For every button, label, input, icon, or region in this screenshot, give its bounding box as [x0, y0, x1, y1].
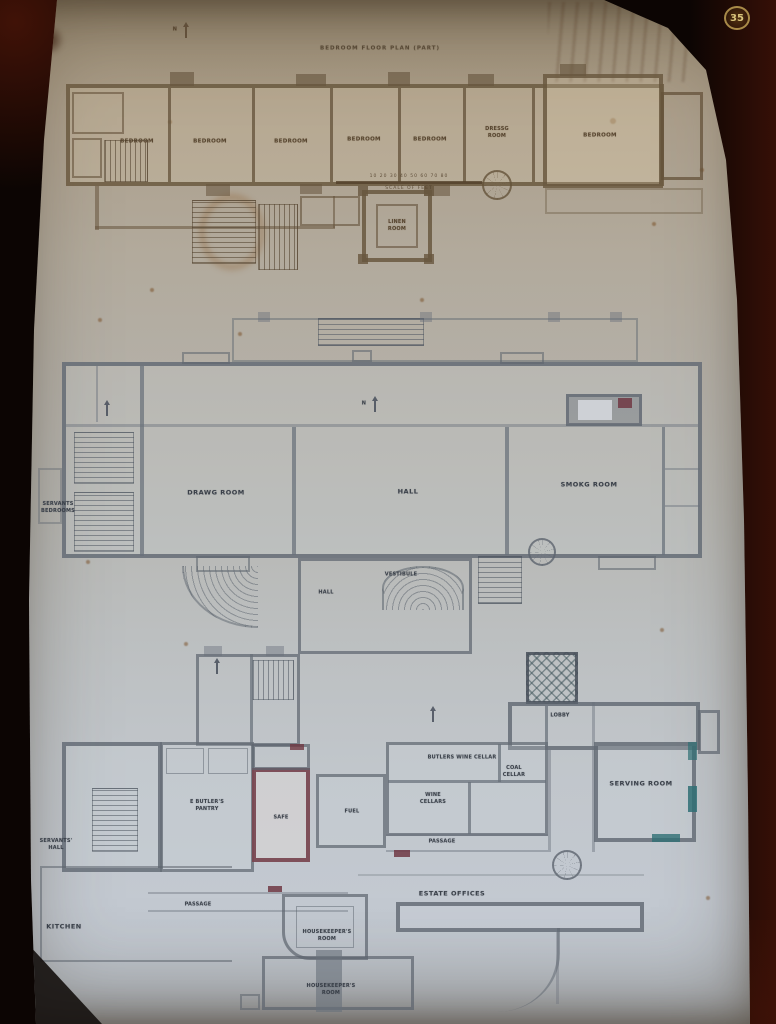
spiral-stair [528, 538, 556, 566]
wall [168, 88, 171, 182]
framed-floor-plan-photo: BEDROOM FLOOR PLAN (PART) [0, 0, 776, 1024]
stair-hatch [74, 432, 134, 484]
wall [252, 88, 255, 182]
wall [662, 427, 665, 555]
wall [250, 654, 253, 746]
bay-window [266, 646, 284, 656]
wall [548, 750, 551, 852]
room-label-bedroom: BEDROOM [193, 139, 227, 146]
room-label-housekeepers-room: HOUSEKEEPER'S ROOM [303, 929, 352, 943]
window-mark [688, 786, 697, 812]
room-label-coal-cellar: COAL CELLAR [503, 765, 525, 779]
room-label-butlers-pantry: E BUTLER'S PANTRY [190, 799, 224, 813]
north-label: N [362, 401, 366, 408]
porch-outline [38, 468, 62, 524]
curved-steps [182, 566, 258, 628]
wall [498, 744, 501, 782]
wing-stub [698, 710, 720, 754]
foxing-dot [86, 560, 90, 564]
north-arrow-icon [372, 396, 378, 412]
page-number: 35 [730, 13, 744, 24]
room-label-butlers-wine-cellar: BUTLERS WINE CELLAR [428, 755, 497, 762]
room-label-estate-offices: ESTATE OFFICES [419, 891, 485, 898]
room-label-dressing-room: DRESSG ROOM [485, 126, 509, 140]
wall [532, 88, 535, 182]
serving-room-block [594, 742, 696, 842]
scale-bar-line [336, 181, 482, 184]
foxing-dot [420, 298, 424, 302]
foxing-dot [98, 318, 102, 322]
wall [96, 366, 98, 422]
room-label-bedroom: BEDROOM [583, 133, 617, 140]
wall [95, 186, 99, 230]
north-label: N [173, 27, 177, 34]
room-label-hall-lower: HALL [318, 590, 333, 597]
scale-caption: SCALE OF FEET [334, 186, 484, 191]
principal-floor-main-block [62, 362, 702, 558]
chimney-mark [618, 398, 632, 408]
bay-window [182, 352, 230, 364]
room-label-drawing-room: DRAWG ROOM [187, 490, 244, 497]
scale-numbers: 10 20 30 40 50 60 70 80 [334, 174, 484, 179]
north-arrow-shaft [106, 405, 108, 416]
terrace-post [548, 312, 560, 322]
room-label-smoking-room: SMOKG ROOM [561, 482, 618, 489]
room-label-bedroom: BEDROOM [347, 137, 381, 144]
room-outline [72, 138, 102, 178]
wall [140, 366, 144, 556]
room-outline [72, 92, 124, 134]
wall [463, 88, 466, 182]
room-label-bedroom: BEDROOM [120, 139, 154, 146]
room-label-vestibule: VESTIBULE [385, 572, 417, 579]
bay-window [204, 646, 222, 656]
room-label-servants-bedrooms: SERVANTS BEDROOMS [41, 501, 75, 515]
room-label-housekeepers-room-2: HOUSEKEEPER'S ROOM [307, 983, 356, 997]
paper-sheet: BEDROOM FLOOR PLAN (PART) [0, 0, 776, 1024]
spiral-stair [482, 170, 512, 200]
room-label-bedroom: BEDROOM [274, 139, 308, 146]
chimney-mark [268, 886, 282, 892]
room-outline [166, 748, 204, 774]
kitchen-outline [40, 866, 232, 962]
bay-window [206, 184, 230, 196]
stair-hatch [258, 204, 298, 270]
room-label-safe: SAFE [273, 815, 288, 822]
terrace-steps [318, 318, 424, 346]
bay-window [598, 556, 656, 570]
north-arrow-shaft [185, 27, 187, 38]
room-label-passage: PASSAGE [429, 839, 456, 846]
north-arrow-icon [183, 22, 189, 38]
passage-line [386, 850, 548, 852]
bay-window [296, 74, 326, 86]
room-label-linen-room: LINEN ROOM [388, 219, 406, 233]
bay-window [560, 64, 586, 76]
north-arrow-icon [430, 706, 436, 722]
room-outline [240, 994, 260, 1010]
stair-hatch [478, 556, 522, 604]
stair-hatch [104, 140, 148, 182]
scale-bar: 10 20 30 40 50 60 70 80 SCALE OF FEET [334, 174, 484, 192]
wall [358, 874, 644, 876]
sheet-title: BEDROOM FLOOR PLAN (PART) [320, 46, 440, 53]
wall [316, 950, 342, 1012]
wall [665, 505, 700, 507]
stair-hatch [74, 492, 134, 552]
terrace-post [258, 312, 270, 322]
wall [292, 427, 296, 555]
foxing-dot [706, 896, 710, 900]
room-label-serving-room: SERVING ROOM [609, 781, 672, 788]
chimney-mark [290, 744, 304, 750]
wall [388, 780, 546, 783]
foxing-dot [660, 628, 664, 632]
foxing-dot [652, 222, 656, 226]
bedroom-floor-right-extension [661, 92, 703, 180]
room-outline [578, 400, 612, 420]
terrace-outline [232, 318, 638, 362]
north-arrow-icon [104, 400, 110, 416]
chimney-mark [394, 850, 410, 857]
window-mark [688, 742, 697, 760]
wall [505, 427, 509, 555]
room-label-passage-left: PASSAGE [185, 902, 212, 909]
wall [330, 88, 333, 182]
wing-outline [545, 188, 703, 214]
north-arrow-shaft [374, 401, 376, 412]
bedroom-floor-right-block [543, 74, 663, 188]
bay-window [300, 184, 322, 194]
north-arrow-shaft [216, 663, 218, 674]
room-label-lobby: LOBBY [550, 713, 569, 720]
room-label-bedroom: BEDROOM [413, 137, 447, 144]
wall [468, 782, 471, 834]
passage-line [386, 834, 548, 836]
bay-window [388, 72, 410, 86]
bay-window [500, 352, 544, 364]
tower-corner [424, 254, 434, 264]
wall [665, 468, 700, 470]
room-label-kitchen: KITCHEN [46, 924, 81, 931]
bay-window [352, 350, 372, 362]
wall [398, 88, 401, 182]
skylight-hatch [526, 652, 578, 704]
room-label-wine-cellars: WINE CELLARS [420, 792, 446, 806]
room-label-servants-hall: SERVANTS' HALL [40, 838, 73, 852]
north-arrow-icon [214, 658, 220, 674]
terrace-post [610, 312, 622, 322]
window-mark [652, 834, 680, 842]
north-arrow-shaft [432, 711, 434, 722]
room-label-hall: HALL [398, 489, 419, 496]
stair-hatch [92, 788, 138, 852]
stair-hatch [192, 200, 256, 264]
bay-window [170, 72, 194, 86]
room-outline [300, 196, 360, 226]
foxing-dot [184, 642, 188, 646]
bay-window [468, 74, 494, 86]
terrace-post [420, 312, 432, 322]
foxing-dot [150, 288, 154, 292]
room-label-fuel: FUEL [345, 809, 360, 816]
page-number-badge: 35 [724, 6, 750, 30]
curved-path [470, 928, 560, 1012]
room-outline [208, 748, 248, 774]
tower-corner [358, 254, 368, 264]
stair-hatch [252, 660, 294, 700]
